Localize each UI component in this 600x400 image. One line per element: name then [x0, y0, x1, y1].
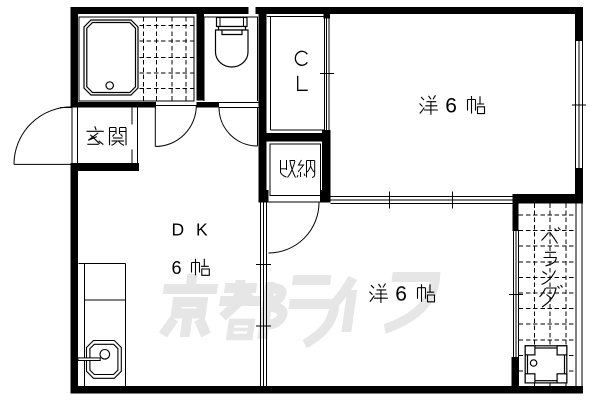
svg-text:6: 6: [445, 95, 457, 118]
svg-text:6: 6: [171, 258, 181, 278]
svg-text:D: D: [171, 219, 184, 239]
svg-text:K: K: [196, 219, 208, 239]
